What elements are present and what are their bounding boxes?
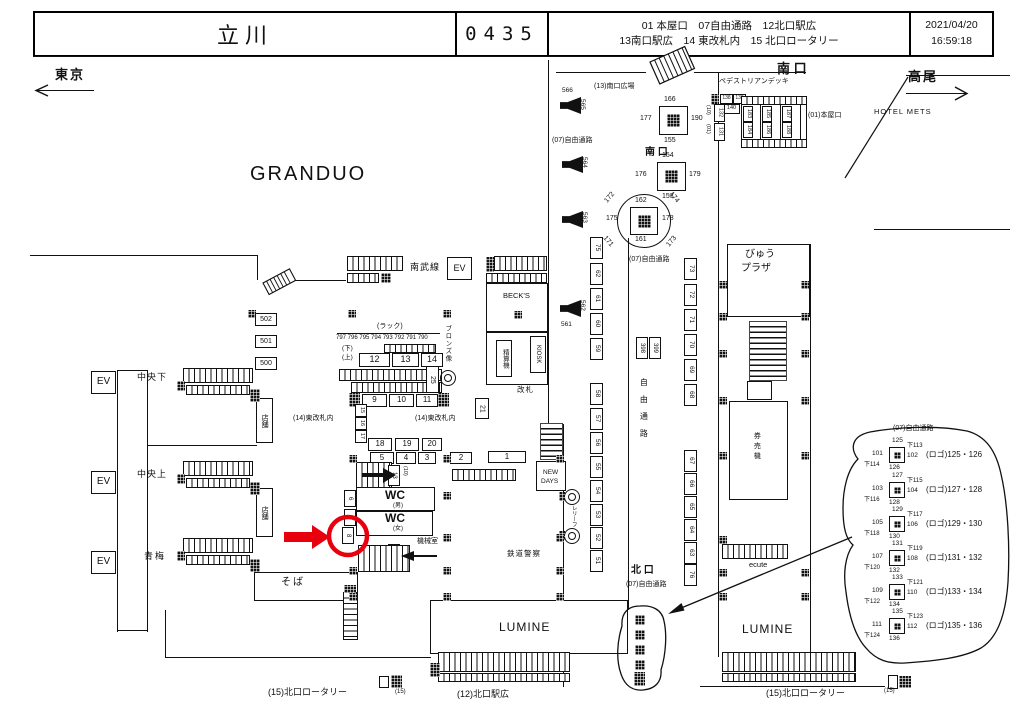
elevator: EV (91, 371, 116, 394)
railway-police-label: 鉄道警察 (507, 550, 541, 558)
pillar (899, 676, 911, 688)
label: (ロゴ)131・132 (926, 554, 982, 562)
pillar (719, 281, 727, 289)
label: 155 (664, 137, 676, 144)
sign-box: 58 (590, 383, 603, 405)
sign-box: 398 (636, 337, 648, 359)
label: 136 (889, 636, 900, 643)
wall (741, 105, 742, 139)
label: (下) (342, 346, 353, 353)
pillar (443, 593, 451, 601)
pillar (556, 567, 564, 575)
label: 565 (578, 99, 585, 110)
south-exit-deck-label: 南 口 (777, 62, 807, 76)
north-exit-label: 北 口 (631, 566, 654, 577)
stairs (741, 139, 807, 148)
sign-box: 2 (450, 452, 472, 464)
label: 下123 (907, 614, 923, 620)
sign-box: 14 (421, 353, 443, 367)
pillar (514, 311, 522, 319)
sign-box: 53 (590, 504, 603, 526)
pillar (443, 310, 451, 318)
sign-box: 67 (684, 450, 697, 472)
sign-box: 6 (344, 490, 356, 507)
label: 172 (603, 191, 616, 205)
stairs (183, 368, 253, 383)
pillar (443, 534, 451, 542)
pillar (719, 569, 727, 577)
sign-box: 店舗 (256, 398, 273, 443)
label: 101 (872, 451, 883, 458)
sign-box: 3 (418, 452, 436, 464)
wc-men-label: WC (385, 489, 405, 502)
gate-stripes (749, 321, 787, 381)
label: 127 (892, 473, 903, 480)
wall (800, 105, 801, 139)
label: (10) (401, 466, 407, 476)
sign-box: 18 (368, 438, 392, 451)
label: (14)東改札内 (293, 415, 333, 422)
label: 103 (872, 486, 883, 493)
label: 下121 (907, 580, 923, 586)
sign-box: 19 (395, 438, 419, 451)
label: 178 (662, 215, 674, 222)
sign-box: 精算機 (496, 340, 512, 377)
label: (07)自由通路 (893, 425, 933, 432)
stairs (486, 273, 547, 283)
building-diagonal-wall (845, 77, 908, 178)
sign-box: 75 (590, 237, 603, 259)
lumine-center-label: LUMINE (499, 621, 550, 634)
elevator: EV (447, 257, 472, 280)
pillar (719, 536, 727, 544)
sign-box: 71 (684, 309, 697, 331)
label: 109 (872, 588, 883, 595)
label: (01) (704, 124, 710, 134)
sign-box: 60 (590, 313, 603, 335)
wall (806, 105, 807, 139)
label: 135 (892, 609, 903, 616)
blob-pointer-head (668, 603, 685, 614)
wall (337, 333, 440, 334)
pillar (634, 672, 645, 686)
sign-box: 69 (684, 359, 697, 381)
pillar-sign (659, 106, 688, 135)
sign-box: 11 (416, 394, 438, 407)
label: 下120 (864, 565, 880, 571)
hotel-mets-label: HOTEL METS (874, 108, 932, 116)
pillar (349, 455, 357, 463)
wall (628, 238, 629, 610)
pillar (556, 593, 564, 601)
label: 下116 (864, 497, 880, 503)
sign-box: 184 (743, 122, 753, 138)
sign-box: 183 (743, 106, 753, 122)
pillar (801, 281, 809, 289)
pillar-sign (889, 584, 905, 600)
stairs (347, 273, 379, 283)
stairs (452, 469, 516, 481)
pillar (635, 630, 645, 640)
stairs (186, 385, 250, 395)
wall (117, 370, 118, 632)
title-bar: 立川 0435 01 本屋口 07自由通路 12北口駅広 13南口駅広 14 東… (33, 11, 994, 57)
label: ペデストリアンデッキ (719, 78, 789, 85)
label: (10) (704, 105, 710, 115)
label: 下118 (864, 531, 880, 537)
wall (117, 370, 148, 371)
label: (15)北口ロータリー (766, 689, 845, 698)
sign-box: 132 (714, 104, 725, 122)
station-name: 立川 (35, 13, 457, 55)
label: 177 (640, 115, 652, 122)
wall (810, 244, 811, 656)
stairs (438, 652, 570, 672)
pillar (719, 452, 727, 460)
sign-box: 138 (720, 94, 733, 104)
wall (33, 56, 990, 57)
room (747, 381, 772, 400)
wall (780, 105, 781, 139)
label: (男) (393, 503, 403, 509)
highlight-arrow-head (312, 525, 330, 549)
label: (12)北口駅広 (457, 690, 509, 699)
shutter-icon (263, 269, 296, 295)
label: 下117 (907, 512, 923, 518)
pillar (801, 452, 809, 460)
sign-box: 188 (782, 122, 792, 138)
label: (ロゴ)125・126 (926, 451, 982, 459)
label: 173 (665, 235, 678, 249)
label: 162 (635, 197, 647, 204)
stairs (384, 344, 436, 353)
newdays-label: DAYS (541, 479, 558, 486)
bronze-statue-label: ブロンズ像 (443, 325, 450, 363)
sign-box: 4 (396, 452, 416, 464)
label: 青梅 (144, 552, 166, 561)
stairs (356, 462, 392, 489)
pillar-sign (889, 618, 905, 634)
pillar (635, 645, 645, 655)
soba-label: そば (281, 578, 305, 589)
label: 102 (907, 453, 918, 460)
pillar (801, 350, 809, 358)
circle (568, 493, 576, 501)
sign-box: 68 (684, 384, 697, 406)
pillar (486, 257, 494, 272)
sign-box: 72 (684, 284, 697, 306)
label: 129 (892, 507, 903, 514)
stairs (438, 673, 570, 682)
label: 176 (635, 171, 647, 178)
label: 126 (889, 465, 900, 472)
label: 中央下 (137, 373, 167, 382)
nambu-line-label: 南武線 (410, 263, 440, 272)
pillar (177, 474, 185, 484)
label: 561 (561, 322, 572, 329)
sign-box: 56 (590, 432, 603, 454)
time: 16:59:18 (931, 34, 972, 50)
sign-box: 54 (590, 480, 603, 502)
sign-box: 57 (590, 408, 603, 430)
pillar (250, 482, 260, 495)
label: 104 (907, 488, 918, 495)
stairs (186, 478, 250, 488)
becks-label: BECK'S (503, 292, 530, 300)
label: 161 (635, 236, 647, 243)
pillar (443, 455, 451, 463)
stairs (741, 96, 807, 105)
pillar-sign (889, 447, 905, 463)
sign-box: 501 (255, 335, 277, 348)
sign-box: 13 (392, 353, 419, 367)
label: (07)自由通路 (626, 581, 666, 588)
label: (01)本屋口 (808, 112, 841, 119)
stairs (347, 256, 403, 271)
sign-box: 16 (355, 417, 367, 430)
label: 111 (872, 622, 882, 629)
wall (36, 90, 94, 91)
wall (760, 105, 761, 139)
highlight-arrow (284, 532, 312, 542)
sign-box: 51 (590, 550, 603, 572)
sign-box (888, 675, 898, 689)
sign-8-highlighted: 8 (342, 527, 354, 544)
relief-label: レリーフ (570, 505, 576, 527)
sign-box: 店舗 (256, 488, 273, 537)
label: 179 (689, 171, 701, 178)
sign-box: 399 (649, 337, 661, 359)
pillar (349, 593, 357, 601)
label: (ラック) (377, 323, 403, 330)
label: 131 (892, 541, 903, 548)
sign-box: 59 (590, 338, 603, 360)
sign-box: 10 (389, 394, 414, 407)
label: 797 796 795 794 793 792 791 790 (336, 335, 428, 341)
stairs (494, 256, 547, 271)
label: 112 (907, 624, 917, 631)
elevator: EV (91, 551, 116, 574)
label: 下122 (864, 599, 880, 605)
stairs (183, 461, 253, 476)
circle (444, 374, 452, 382)
label: 下124 (864, 633, 880, 639)
label: 下115 (907, 478, 923, 484)
label: (15)北口ロータリー (268, 688, 347, 697)
pillar (801, 569, 809, 577)
sign-box: 17 (355, 430, 367, 443)
label: 125 (892, 438, 903, 445)
pillar (391, 675, 402, 688)
wall (294, 280, 346, 281)
pillar-sign (889, 482, 905, 498)
compass-tokyo: 東京 (55, 68, 85, 82)
pillar (344, 585, 356, 593)
label: 下119 (907, 546, 923, 552)
compass-takao: 高尾 (908, 70, 938, 84)
sign-box: 140 (723, 104, 740, 114)
stairs (183, 538, 253, 553)
pillar-sign (889, 516, 905, 532)
datetime: 2021/04/20 16:59:18 (911, 13, 992, 55)
wc-women-label: WC (385, 512, 405, 525)
wall (906, 75, 1010, 76)
label: 下114 (864, 462, 880, 468)
wall (257, 255, 258, 280)
pillar (349, 567, 357, 575)
sign-box: 63 (684, 542, 697, 564)
label: (07)自由通路 (552, 137, 592, 144)
label: 190 (691, 115, 703, 122)
label: (ロゴ)129・130 (926, 520, 982, 528)
sign-box: 21 (475, 398, 489, 419)
label: 下113 (907, 443, 923, 449)
wall (147, 370, 148, 632)
circle (568, 532, 576, 540)
sign-box: 131 (714, 123, 725, 141)
pillar (635, 615, 645, 625)
pillar (177, 381, 185, 391)
sign-box: 185 (762, 106, 772, 122)
stairs (722, 652, 856, 672)
label: 566 (562, 88, 573, 95)
label: 166 (664, 96, 676, 103)
view-plaza-label: びゅう (745, 250, 775, 261)
wall (694, 72, 806, 73)
stairs (186, 555, 250, 565)
pillar-sign (889, 550, 905, 566)
wall (30, 255, 258, 256)
ecute-label: ecute (749, 561, 767, 569)
pillar (430, 663, 440, 677)
sign-box: 25 (426, 366, 439, 393)
stairs (358, 545, 410, 572)
sign-box: 76 (684, 564, 697, 586)
sign-box: 15 (355, 404, 367, 417)
ticket-gate-label: 改札 (517, 386, 534, 394)
pillar (177, 551, 185, 561)
stairs (722, 544, 788, 559)
label: 106 (907, 522, 918, 529)
label: 563 (580, 212, 587, 223)
label: (ロゴ)133・134 (926, 588, 982, 596)
sign-box: 502 (255, 313, 277, 326)
label: 174 (667, 191, 680, 205)
label: 108 (907, 556, 918, 563)
wall (165, 657, 431, 658)
date: 2021/04/20 (925, 18, 978, 34)
label: 110 (907, 590, 917, 597)
wall (117, 630, 148, 631)
sign-box (379, 676, 389, 688)
pillar (801, 593, 809, 601)
pillar (438, 393, 449, 407)
newdays-label: NEW (543, 470, 558, 477)
pillar (801, 397, 809, 405)
sign-box: 62 (590, 263, 603, 285)
pillar (443, 492, 451, 500)
label: 562 (578, 300, 585, 311)
granduo-label: GRANDUO (250, 164, 366, 185)
pillar (635, 660, 645, 670)
label: (女) (393, 526, 403, 532)
label: (13)南口広場 (594, 83, 634, 90)
wall (556, 72, 646, 73)
station-map-screen: 立川 0435 01 本屋口 07自由通路 12北口駅広 13南口駅広 14 東… (0, 0, 1024, 724)
wall (874, 229, 1010, 230)
label: (14)東改札内 (415, 415, 455, 422)
sign-box: 70 (684, 334, 697, 356)
pillar (719, 313, 727, 321)
wall (165, 610, 166, 658)
pillar (719, 397, 727, 405)
pillar (719, 350, 727, 358)
label: 107 (872, 554, 883, 561)
label: (15) (395, 689, 406, 695)
wall (413, 555, 437, 557)
sign-box: 500 (255, 357, 277, 370)
pillar (381, 273, 391, 283)
pillar (559, 492, 565, 501)
label: (07)自由通路 (629, 256, 669, 263)
stairs (722, 673, 856, 682)
legend: 01 本屋口 07自由通路 12北口駅広 13南口駅広 14 東改札内 15 北… (549, 13, 911, 55)
sign-box: 52 (590, 527, 603, 549)
label: 105 (872, 520, 883, 527)
label: 564 (580, 157, 587, 168)
ticket-machines-label: 券売機 (753, 432, 760, 462)
sign-box: 64 (684, 519, 697, 541)
wall (906, 93, 966, 94)
legend-line-2: 13南口駅広 14 東改札内 15 北口ロータリー (619, 34, 838, 49)
label: 自由通路 (639, 378, 647, 446)
label: 133 (892, 575, 903, 582)
sign-box: 13 (388, 465, 400, 486)
machine-room-label: 機械室 (417, 538, 438, 545)
label: (ロゴ)127・128 (926, 486, 982, 494)
pillar (250, 559, 260, 572)
pillar-sign (657, 162, 686, 191)
sign-box: 187 (782, 106, 792, 122)
label: (上) (342, 355, 353, 362)
label: 171 (601, 235, 614, 249)
sign-box: 55 (590, 456, 603, 478)
sign-box: 66 (684, 473, 697, 495)
pillar (719, 593, 727, 601)
elevator: EV (91, 471, 116, 494)
sign-box: 20 (422, 438, 442, 451)
pillar (801, 313, 809, 321)
wall (548, 60, 549, 426)
view-plaza-label: プラザ (741, 264, 771, 275)
pillar (443, 567, 451, 575)
wall (147, 445, 257, 446)
sign-box: 73 (684, 258, 697, 280)
sign-box: 61 (590, 288, 603, 310)
sign-box: 12 (359, 353, 390, 367)
legend-line-1: 01 本屋口 07自由通路 12北口駅広 (642, 19, 816, 34)
sign-box: KIOSK (530, 336, 546, 373)
sign-box: 65 (684, 496, 697, 518)
wall (700, 686, 885, 687)
label: (15) (884, 688, 895, 694)
label: 中央上 (137, 470, 167, 479)
screen-code: 0435 (457, 13, 549, 55)
pillar (348, 310, 356, 318)
label: 175 (606, 215, 618, 222)
lumine-right-label: LUMINE (742, 623, 793, 636)
sign-box: 186 (762, 122, 772, 138)
